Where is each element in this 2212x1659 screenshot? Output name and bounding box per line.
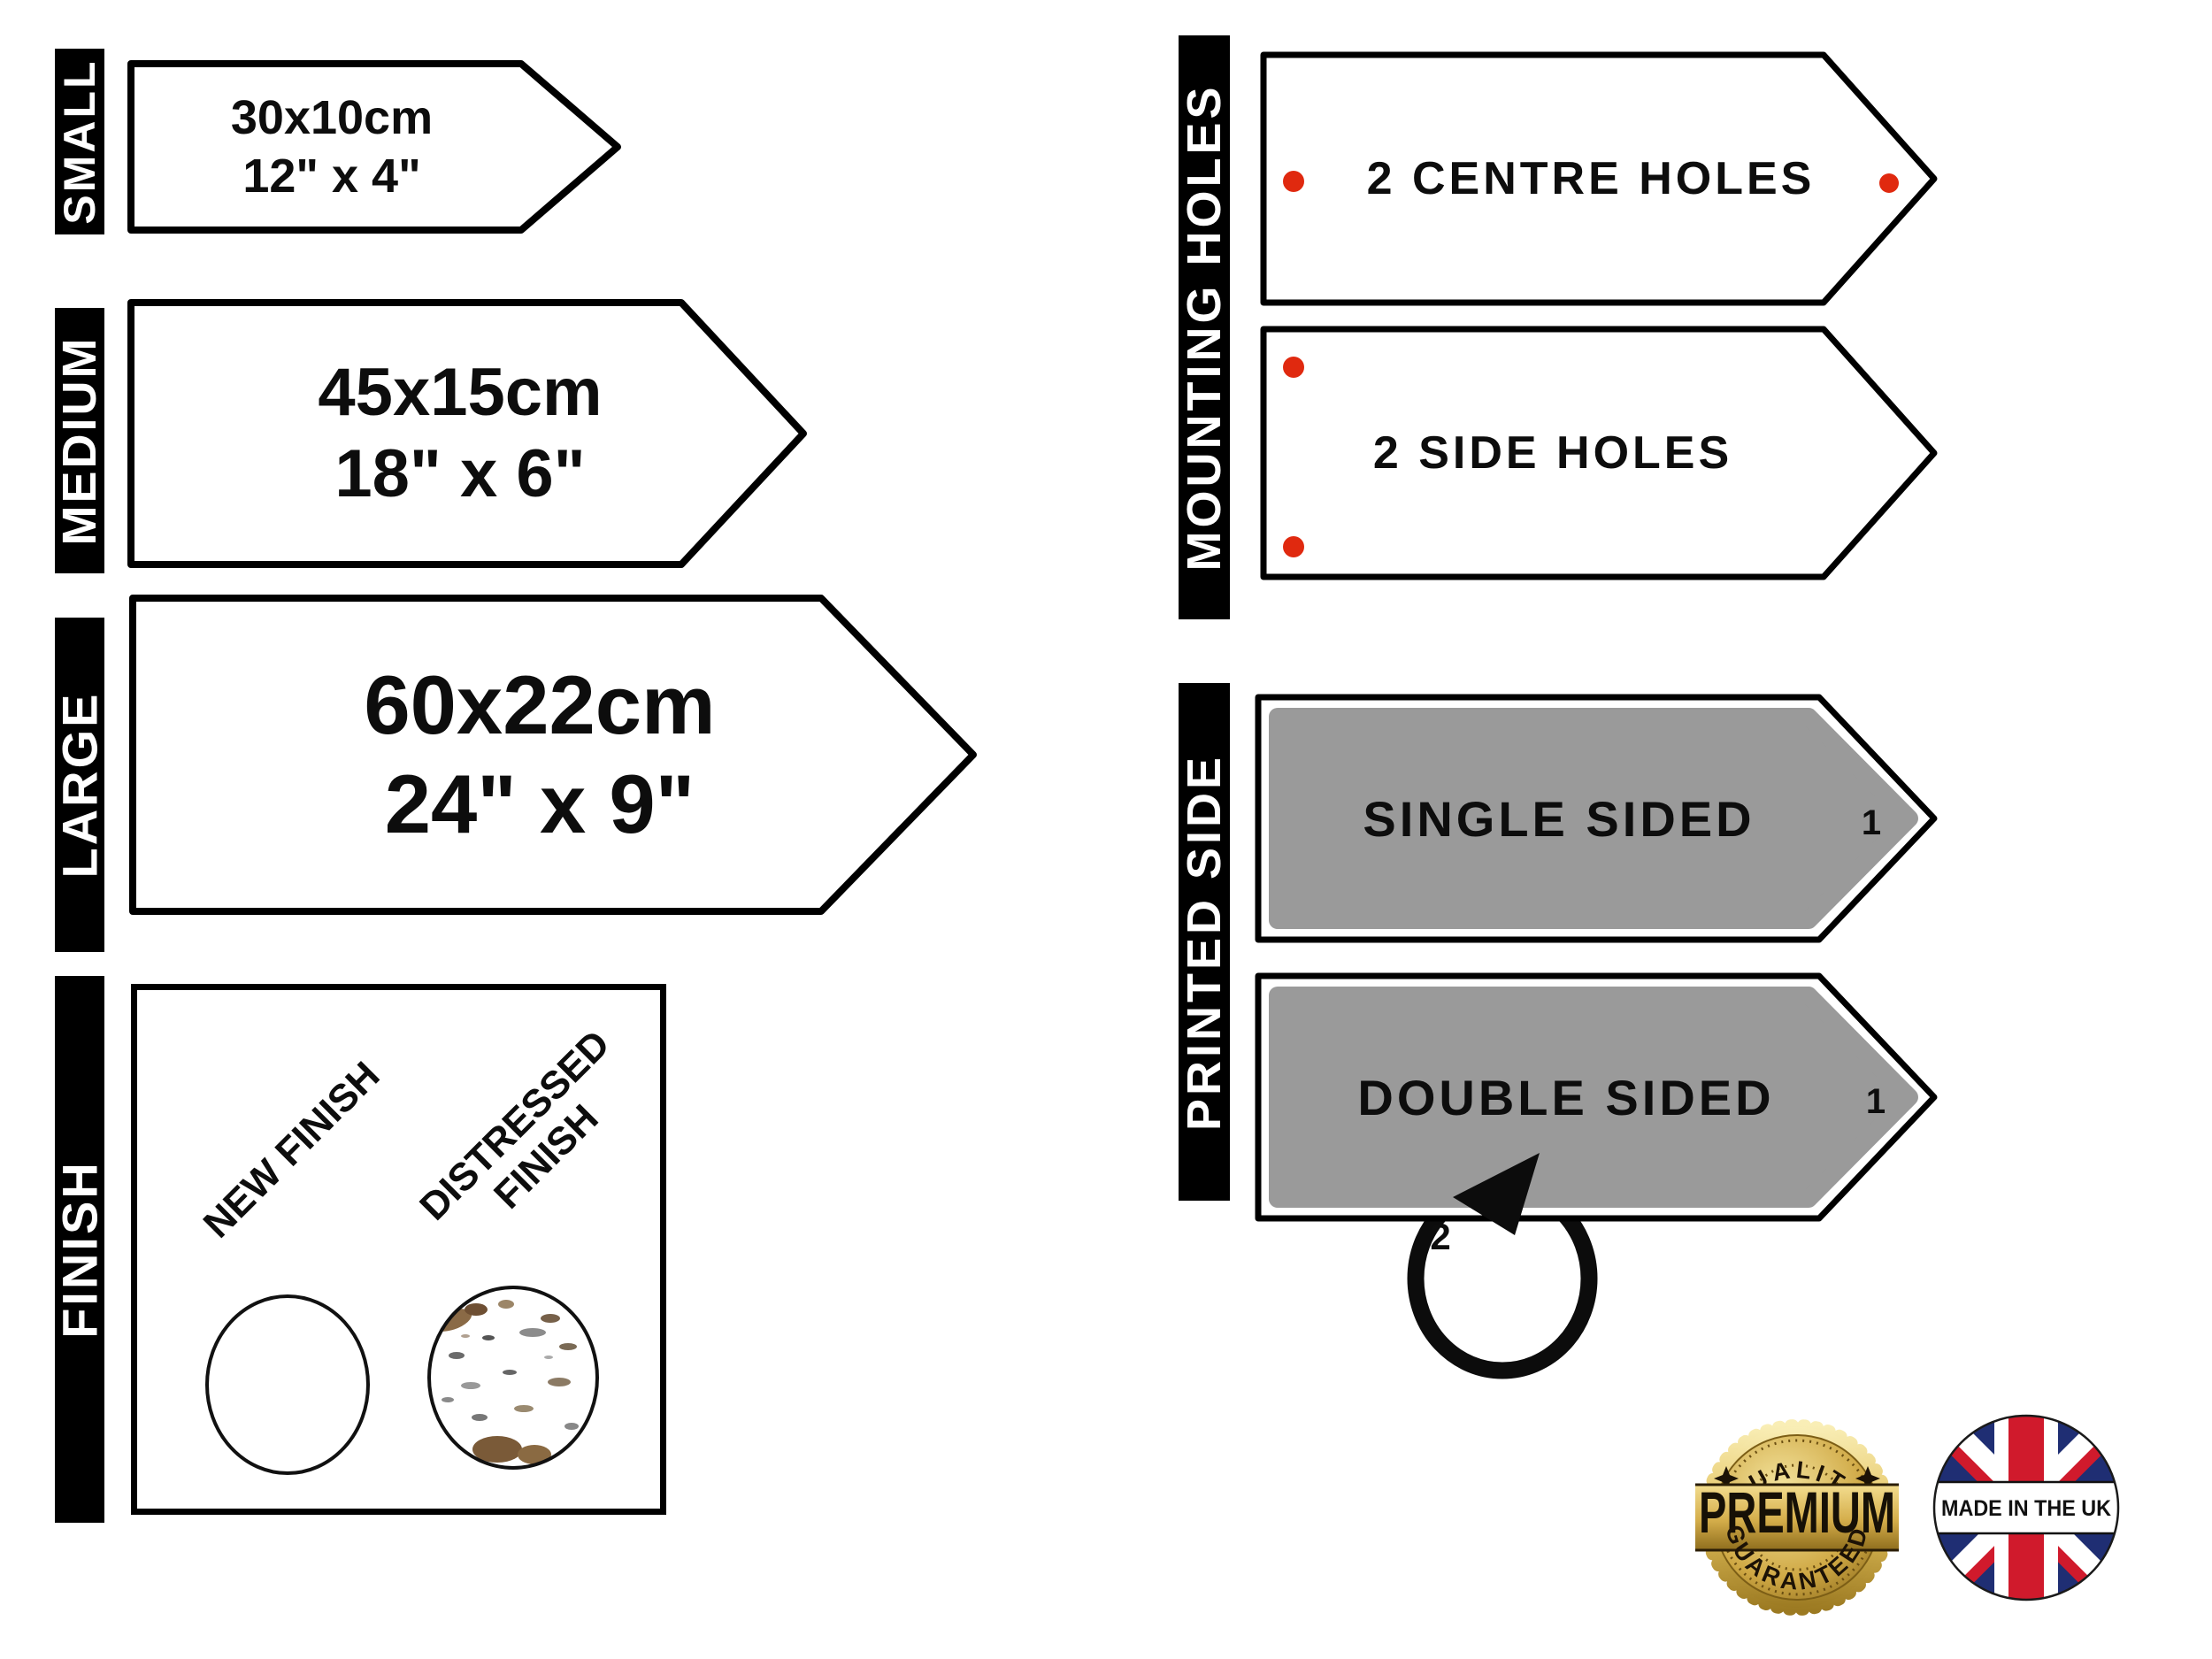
finish-label: FINISH bbox=[51, 1160, 109, 1339]
double-sided-front-marker: 1 bbox=[1849, 1075, 1902, 1128]
finish-bar: FINISH bbox=[55, 976, 104, 1523]
distressed-finish-swatch bbox=[425, 1283, 602, 1473]
size-medium-label: MEDIUM bbox=[52, 336, 107, 546]
large-sign-text: 60x22cm 24" x 9" bbox=[142, 595, 938, 915]
small-size-metric: 30x10cm bbox=[231, 88, 433, 147]
size-small-label: SMALL bbox=[54, 58, 105, 224]
centre-holes-text: 2 CENTRE HOLES bbox=[1325, 51, 1856, 306]
printed-side-bar: PRINTED SIDE bbox=[1179, 683, 1230, 1201]
product-options-infographic: SMALL 30x10cm 12" x 4" MEDIUM 45x15cm 18… bbox=[0, 0, 2212, 1659]
centre-hole-left-dot bbox=[1283, 171, 1304, 192]
medium-size-metric: 45x15cm bbox=[318, 352, 602, 434]
made-in-uk-badge: MADE IN THE UK bbox=[1931, 1414, 2122, 1601]
small-sign-text: 30x10cm 12" x 4" bbox=[133, 60, 531, 234]
size-medium-bar: MEDIUM bbox=[55, 308, 104, 573]
uk-badge-text: MADE IN THE UK bbox=[1941, 1496, 2111, 1521]
small-size-imperial: 12" x 4" bbox=[242, 147, 420, 205]
size-large-bar: LARGE bbox=[55, 618, 104, 952]
flip-back-marker: 2 bbox=[1414, 1210, 1467, 1263]
printed-side-label: PRINTED SIDE bbox=[1177, 753, 1232, 1130]
double-sided-text: DOUBLE SIDED bbox=[1301, 972, 1832, 1222]
size-large-label: LARGE bbox=[51, 692, 109, 879]
new-finish-swatch bbox=[204, 1292, 372, 1478]
single-sided-front-marker: 1 bbox=[1845, 796, 1898, 849]
large-size-imperial: 24" x 9" bbox=[385, 755, 695, 854]
single-sided-text: SINGLE SIDED bbox=[1294, 694, 1824, 943]
medium-size-imperial: 18" x 6" bbox=[334, 434, 585, 515]
large-size-metric: 60x22cm bbox=[364, 656, 715, 755]
medium-sign-text: 45x15cm 18" x 6" bbox=[142, 299, 779, 568]
premium-quality-badge: QUALITY PREMIUM GUARANTEED bbox=[1695, 1416, 1899, 1619]
size-small-bar: SMALL bbox=[55, 49, 104, 234]
centre-hole-right-dot bbox=[1879, 173, 1899, 193]
side-holes-text: 2 SIDE HOLES bbox=[1287, 326, 1818, 580]
mounting-holes-bar: MOUNTING HOLES bbox=[1179, 35, 1230, 619]
mounting-holes-label: MOUNTING HOLES bbox=[1177, 84, 1232, 572]
